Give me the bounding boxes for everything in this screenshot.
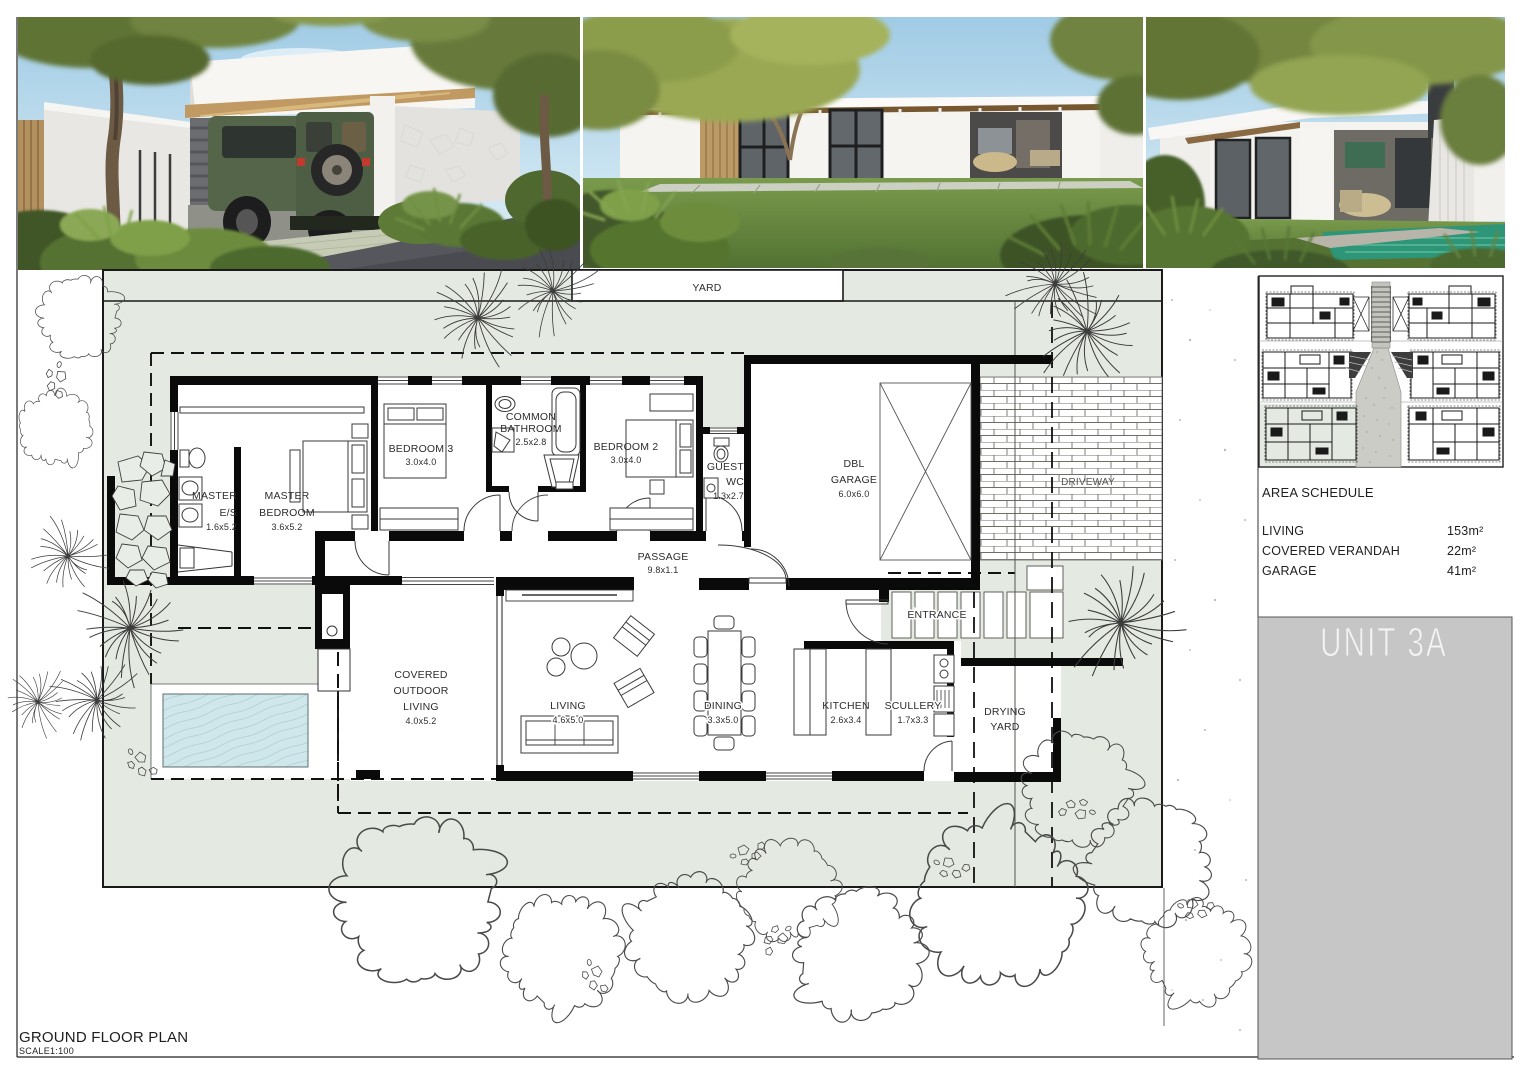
- svg-text:SCULLERY: SCULLERY: [885, 700, 942, 712]
- svg-text:9.8x1.1: 9.8x1.1: [648, 565, 679, 575]
- svg-text:AREA SCHEDULE: AREA SCHEDULE: [1262, 485, 1374, 500]
- svg-text:WC: WC: [726, 476, 744, 488]
- svg-text:3.0x4.0: 3.0x4.0: [611, 455, 642, 465]
- svg-text:153m²: 153m²: [1447, 524, 1483, 538]
- svg-text:GUEST: GUEST: [707, 461, 745, 473]
- svg-text:UNIT 3A: UNIT 3A: [1320, 619, 1448, 665]
- svg-text:ENTRANCE: ENTRANCE: [907, 609, 966, 621]
- svg-text:3.0x4.0: 3.0x4.0: [406, 457, 437, 467]
- svg-text:COVERED VERANDAH: COVERED VERANDAH: [1262, 544, 1400, 558]
- svg-text:LIVING: LIVING: [403, 701, 439, 713]
- svg-text:DRIVEWAY: DRIVEWAY: [1061, 477, 1115, 488]
- svg-text:4.6x5.0: 4.6x5.0: [553, 715, 584, 725]
- svg-text:LIVING: LIVING: [1262, 524, 1304, 538]
- svg-text:DBL: DBL: [843, 458, 864, 470]
- svg-text:4.0x5.2: 4.0x5.2: [406, 716, 437, 726]
- svg-text:PASSAGE: PASSAGE: [638, 551, 689, 563]
- svg-text:YARD: YARD: [692, 282, 721, 294]
- svg-text:3.3x5.0: 3.3x5.0: [708, 715, 739, 725]
- svg-text:22m²: 22m²: [1447, 544, 1476, 558]
- svg-text:6.0x6.0: 6.0x6.0: [839, 489, 870, 499]
- svg-text:GROUND FLOOR PLAN: GROUND FLOOR PLAN: [19, 1029, 188, 1046]
- svg-text:BEDROOM: BEDROOM: [259, 507, 315, 519]
- svg-text:MASTER: MASTER: [265, 490, 310, 502]
- svg-text:BEDROOM 2: BEDROOM 2: [594, 441, 659, 453]
- svg-text:LIVING: LIVING: [550, 700, 586, 712]
- svg-text:BATHROOM: BATHROOM: [500, 423, 562, 435]
- svg-text:BEDROOM 3: BEDROOM 3: [389, 443, 454, 455]
- svg-text:41m²: 41m²: [1447, 564, 1476, 578]
- svg-text:1.7x3.3: 1.7x3.3: [898, 715, 929, 725]
- svg-text:DRYING: DRYING: [984, 706, 1026, 718]
- svg-text:1.3x2.7: 1.3x2.7: [713, 491, 744, 501]
- svg-text:MASTER: MASTER: [192, 490, 237, 502]
- svg-text:COMMON: COMMON: [506, 411, 556, 423]
- svg-text:GARAGE: GARAGE: [1262, 564, 1317, 578]
- svg-text:COVERED: COVERED: [394, 669, 448, 681]
- svg-text:1.6x5.2: 1.6x5.2: [206, 522, 237, 532]
- svg-text:DINING: DINING: [704, 700, 742, 712]
- svg-text:3.6x5.2: 3.6x5.2: [272, 522, 303, 532]
- svg-text:SCALE1:100: SCALE1:100: [19, 1046, 74, 1056]
- svg-text:2.5x2.8: 2.5x2.8: [516, 437, 547, 447]
- svg-text:GARAGE: GARAGE: [831, 474, 877, 486]
- svg-text:E/S: E/S: [219, 507, 237, 519]
- svg-text:KITCHEN: KITCHEN: [822, 700, 870, 712]
- svg-text:YARD: YARD: [990, 721, 1019, 733]
- svg-text:OUTDOOR: OUTDOOR: [393, 685, 448, 697]
- svg-text:2.6x3.4: 2.6x3.4: [831, 715, 862, 725]
